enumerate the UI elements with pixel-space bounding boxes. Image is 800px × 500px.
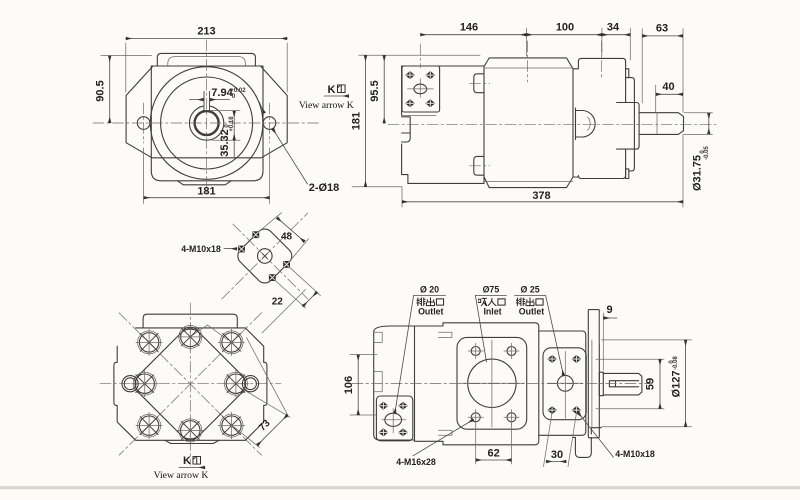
svg-text:146: 146 <box>460 22 478 34</box>
svg-text:95.5: 95.5 <box>369 80 381 101</box>
svg-text:Ø 25: Ø 25 <box>521 285 540 295</box>
svg-text:62: 62 <box>487 448 499 460</box>
svg-text:181: 181 <box>197 186 215 198</box>
svg-text:4-M10x18: 4-M10x18 <box>615 449 655 459</box>
svg-text:+0.18: +0.18 <box>229 116 235 132</box>
svg-text:Ø 20: Ø 20 <box>420 285 439 295</box>
svg-text:View arrow K: View arrow K <box>299 100 354 111</box>
svg-text:-0.05: -0.05 <box>704 146 710 160</box>
svg-text:59: 59 <box>645 378 657 390</box>
svg-text:90.5: 90.5 <box>95 80 107 101</box>
svg-text:Ø31.75: Ø31.75 <box>692 155 704 191</box>
svg-text:Outlet: Outlet <box>418 307 443 317</box>
svg-text:Ø127: Ø127 <box>671 371 683 398</box>
svg-text:22: 22 <box>272 297 284 308</box>
svg-text:35.32: 35.32 <box>219 129 231 157</box>
svg-text:K: K <box>183 455 191 467</box>
svg-text:Ø75: Ø75 <box>483 285 500 295</box>
svg-text:181: 181 <box>351 112 363 130</box>
svg-text:9: 9 <box>606 304 612 316</box>
svg-text:K: K <box>328 84 336 96</box>
svg-text:40: 40 <box>662 81 674 93</box>
svg-text:4-M16x28: 4-M16x28 <box>396 457 436 467</box>
svg-text:63: 63 <box>656 23 668 35</box>
svg-text:213: 213 <box>197 26 215 38</box>
svg-text:73: 73 <box>257 418 273 434</box>
svg-text:106: 106 <box>343 376 355 394</box>
svg-text:0: 0 <box>232 94 236 100</box>
svg-text:48: 48 <box>281 232 293 243</box>
svg-text:Outlet: Outlet <box>519 307 544 317</box>
svg-text:4-M10x18: 4-M10x18 <box>181 244 221 254</box>
svg-text:-0.08: -0.08 <box>673 356 679 370</box>
svg-text:View arrow K: View arrow K <box>154 470 209 481</box>
svg-text:Inlet: Inlet <box>483 307 501 317</box>
svg-text:100: 100 <box>556 22 574 34</box>
svg-text:30: 30 <box>551 449 563 461</box>
svg-text:2-Ø18: 2-Ø18 <box>309 182 340 194</box>
svg-text:34: 34 <box>607 22 620 34</box>
svg-text:378: 378 <box>532 190 550 202</box>
